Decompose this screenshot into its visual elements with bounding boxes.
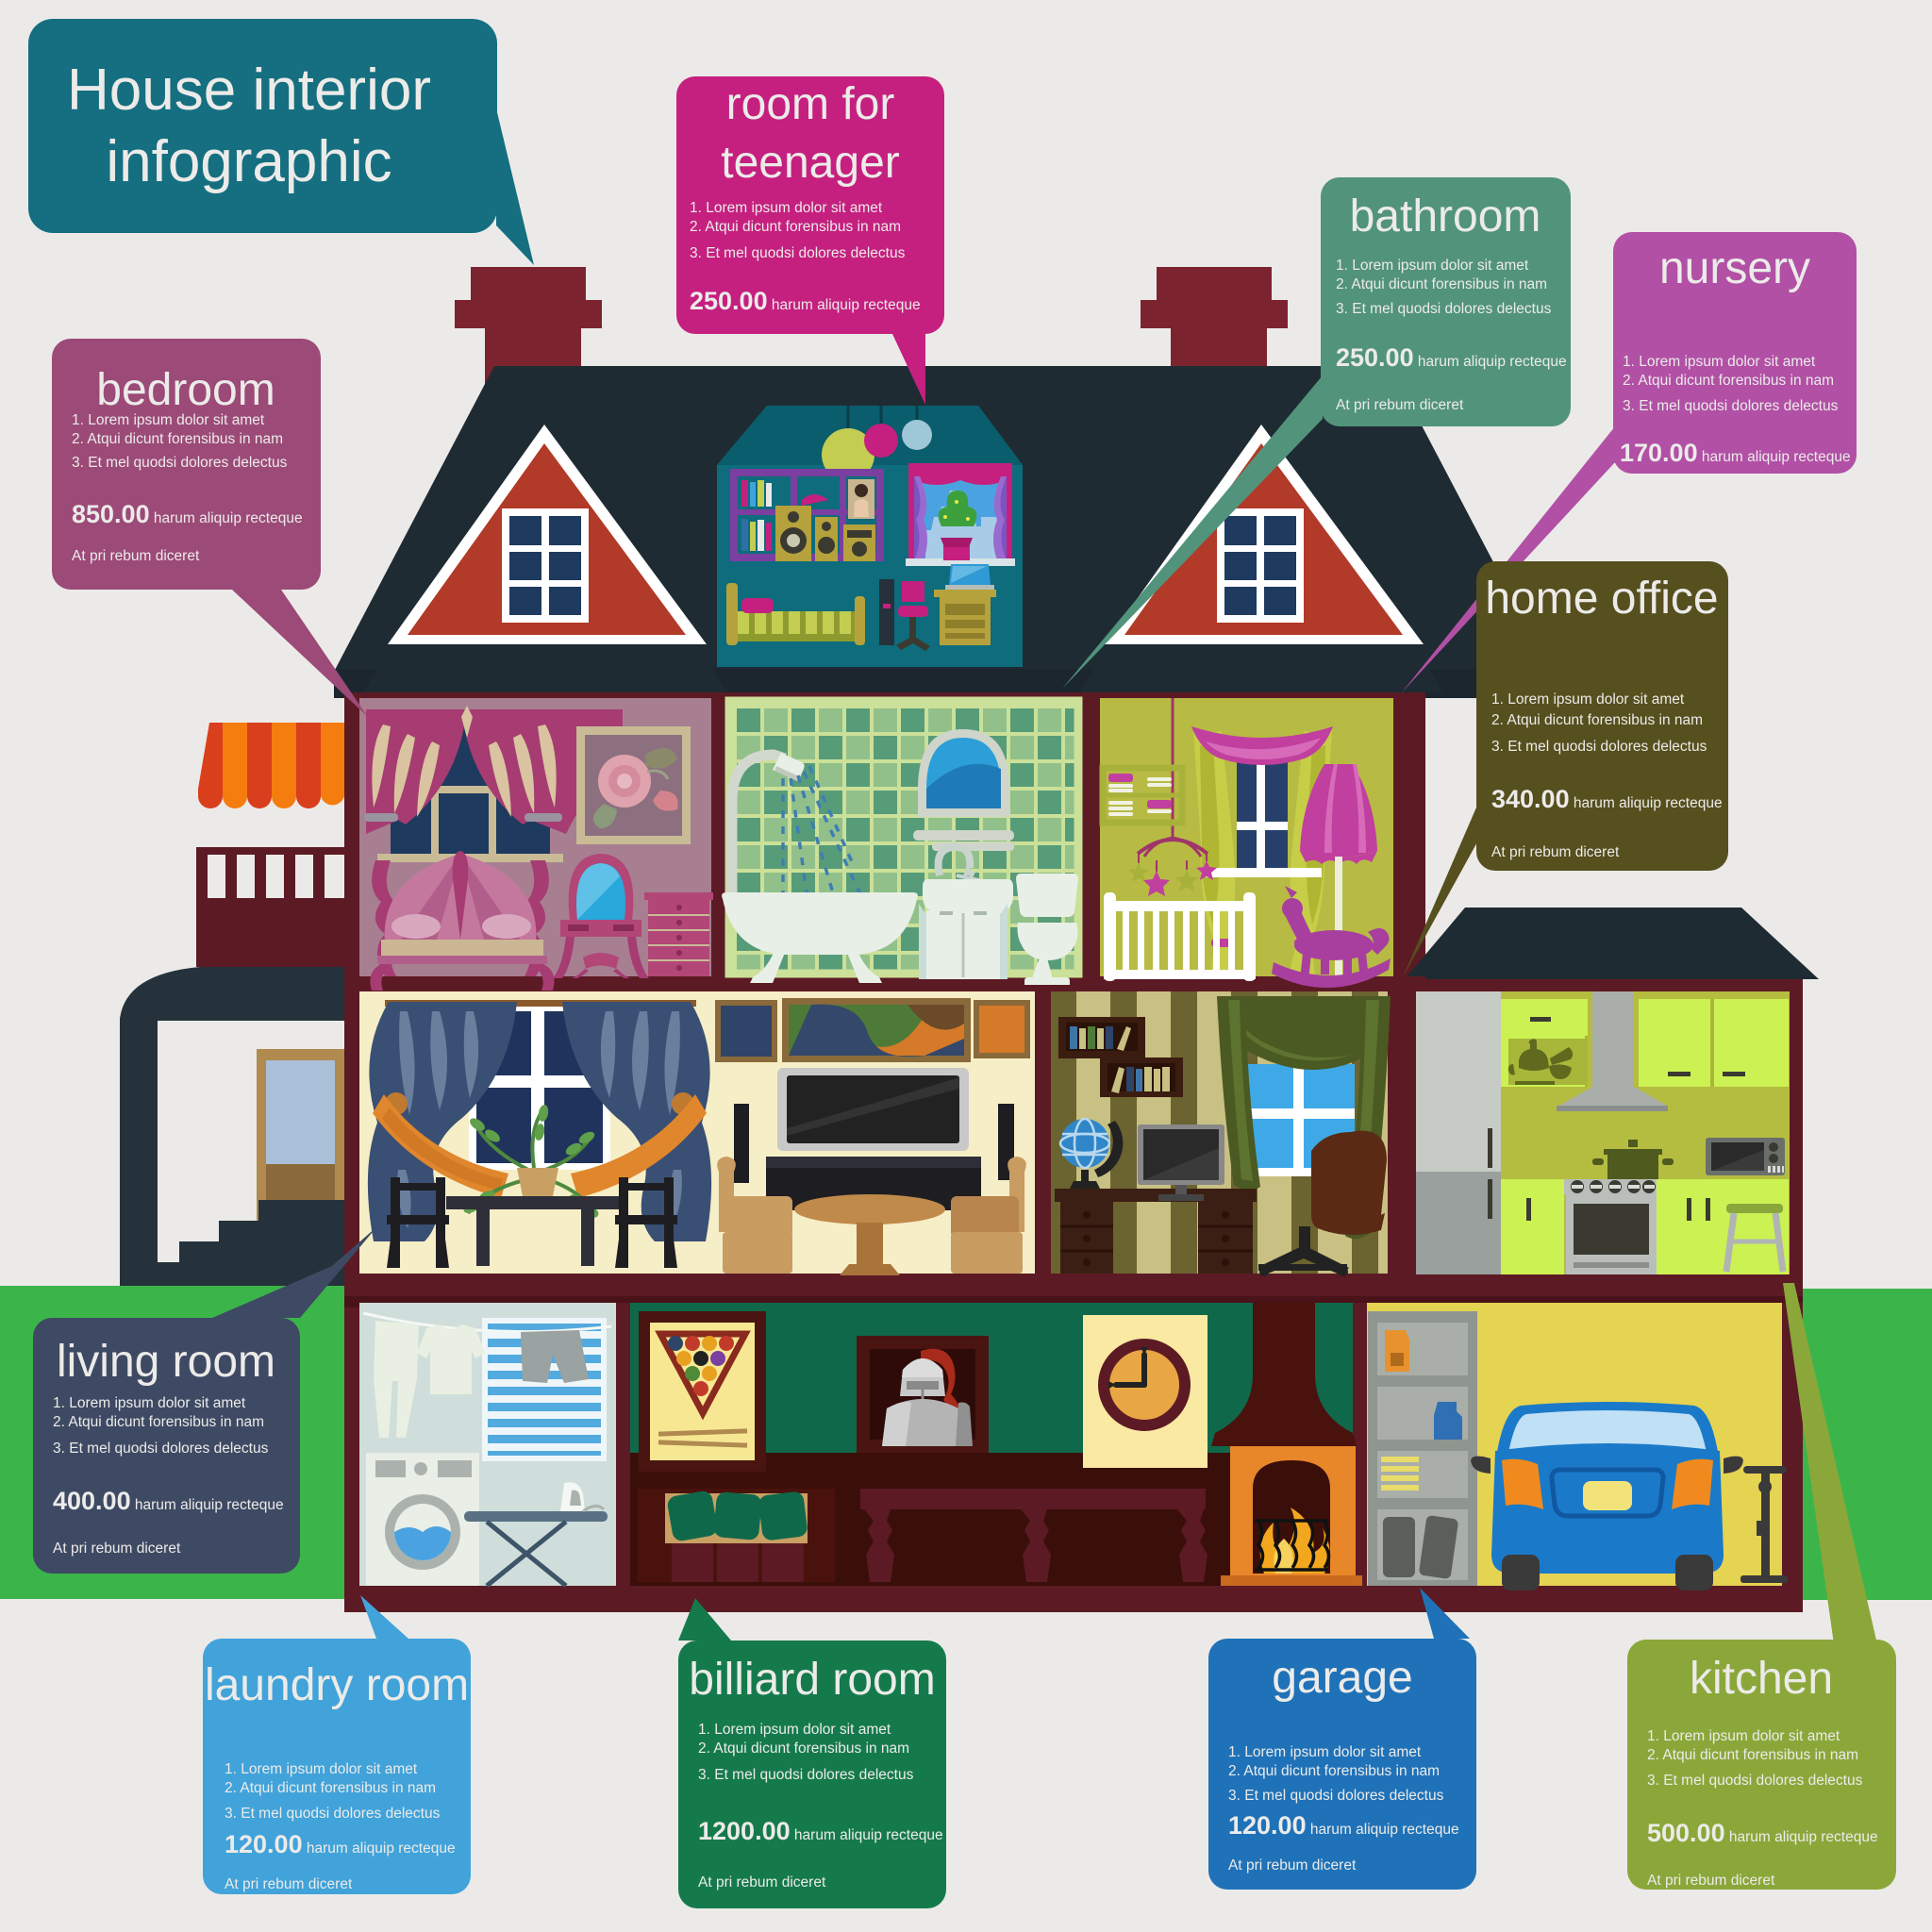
svg-text:3. Et mel quodsi dolores delec: 3. Et mel quodsi dolores delectus xyxy=(1647,1773,1863,1789)
svg-text:At pri rebum diceret: At pri rebum diceret xyxy=(1647,1873,1775,1889)
svg-text:1. Lorem ipsum dolor sit amet: 1. Lorem ipsum dolor sit amet xyxy=(690,200,883,216)
svg-text:2. Atqui dicunt forensibus in: 2. Atqui dicunt forensibus in nam xyxy=(690,219,901,235)
svg-text:2. Atqui dicunt forensibus in: 2. Atqui dicunt forensibus in nam xyxy=(1647,1747,1858,1763)
svg-text:At pri rebum diceret: At pri rebum diceret xyxy=(1491,844,1620,860)
svg-text:laundry room: laundry room xyxy=(205,1660,469,1710)
svg-text:At pri rebum diceret: At pri rebum diceret xyxy=(225,1876,353,1892)
svg-text:2. Atqui dicunt forensibus in: 2. Atqui dicunt forensibus in nam xyxy=(72,431,283,447)
svg-text:1. Lorem ipsum dolor sit amet: 1. Lorem ipsum dolor sit amet xyxy=(1491,691,1685,708)
svg-text:infographic: infographic xyxy=(106,129,391,194)
svg-text:3. Et mel quodsi dolores delec: 3. Et mel quodsi dolores delectus xyxy=(1623,398,1839,414)
svg-text:3. Et mel quodsi dolores delec: 3. Et mel quodsi dolores delectus xyxy=(1336,301,1552,317)
svg-text:1. Lorem ipsum dolor sit amet: 1. Lorem ipsum dolor sit amet xyxy=(1647,1728,1840,1744)
svg-text:bathroom: bathroom xyxy=(1350,192,1541,241)
svg-text:3. Et mel quodsi dolores delec: 3. Et mel quodsi dolores delectus xyxy=(225,1806,441,1822)
svg-text:3. Et mel quodsi dolores delec: 3. Et mel quodsi dolores delectus xyxy=(1228,1788,1444,1804)
svg-text:At pri rebum diceret: At pri rebum diceret xyxy=(72,548,200,564)
svg-text:At pri rebum diceret: At pri rebum diceret xyxy=(1228,1857,1357,1874)
svg-text:1. Lorem ipsum dolor sit amet: 1. Lorem ipsum dolor sit amet xyxy=(1228,1744,1422,1760)
svg-text:2. Atqui dicunt forensibus in: 2. Atqui dicunt forensibus in nam xyxy=(698,1740,909,1757)
svg-text:nursery: nursery xyxy=(1659,243,1810,293)
svg-text:3. Et mel quodsi dolores delec: 3. Et mel quodsi dolores delectus xyxy=(690,245,906,261)
svg-text:home office: home office xyxy=(1485,574,1718,624)
svg-text:2. Atqui dicunt forensibus in: 2. Atqui dicunt forensibus in nam xyxy=(1491,712,1703,728)
svg-text:3. Et mel quodsi dolores delec: 3. Et mel quodsi dolores delectus xyxy=(1491,739,1707,755)
svg-text:2. Atqui dicunt forensibus in: 2. Atqui dicunt forensibus in nam xyxy=(53,1414,264,1430)
svg-text:teenager: teenager xyxy=(721,138,900,188)
svg-text:kitchen: kitchen xyxy=(1690,1654,1833,1704)
svg-text:At pri rebum diceret: At pri rebum diceret xyxy=(1336,397,1464,413)
svg-text:1. Lorem ipsum dolor sit amet: 1. Lorem ipsum dolor sit amet xyxy=(1336,258,1529,274)
svg-text:bedroom: bedroom xyxy=(96,365,275,415)
svg-text:1. Lorem ipsum dolor sit amet: 1. Lorem ipsum dolor sit amet xyxy=(1623,354,1816,370)
svg-text:1. Lorem ipsum dolor sit amet: 1. Lorem ipsum dolor sit amet xyxy=(72,412,265,428)
svg-text:At pri rebum diceret: At pri rebum diceret xyxy=(698,1874,826,1890)
svg-text:billiard room: billiard room xyxy=(689,1655,935,1705)
svg-text:2. Atqui dicunt forensibus in: 2. Atqui dicunt forensibus in nam xyxy=(225,1780,436,1796)
svg-text:1. Lorem ipsum dolor sit amet: 1. Lorem ipsum dolor sit amet xyxy=(225,1761,418,1777)
svg-text:House interior: House interior xyxy=(67,58,431,123)
svg-text:garage: garage xyxy=(1272,1653,1412,1703)
svg-text:1. Lorem ipsum dolor sit amet: 1. Lorem ipsum dolor sit amet xyxy=(698,1722,891,1738)
svg-text:2. Atqui dicunt forensibus in: 2. Atqui dicunt forensibus in nam xyxy=(1336,276,1547,292)
svg-text:room for: room for xyxy=(726,79,895,129)
svg-text:1. Lorem ipsum dolor sit amet: 1. Lorem ipsum dolor sit amet xyxy=(53,1395,246,1411)
svg-text:3. Et mel quodsi dolores delec: 3. Et mel quodsi dolores delectus xyxy=(53,1441,269,1457)
svg-text:2. Atqui dicunt forensibus in: 2. Atqui dicunt forensibus in nam xyxy=(1228,1763,1440,1779)
svg-text:3. Et mel quodsi dolores delec: 3. Et mel quodsi dolores delectus xyxy=(698,1767,914,1783)
svg-text:At pri rebum diceret: At pri rebum diceret xyxy=(53,1541,181,1557)
svg-text:2. Atqui dicunt forensibus in: 2. Atqui dicunt forensibus in nam xyxy=(1623,373,1834,389)
svg-text:living room: living room xyxy=(57,1337,275,1387)
svg-text:3. Et mel quodsi dolores delec: 3. Et mel quodsi dolores delectus xyxy=(72,455,288,471)
